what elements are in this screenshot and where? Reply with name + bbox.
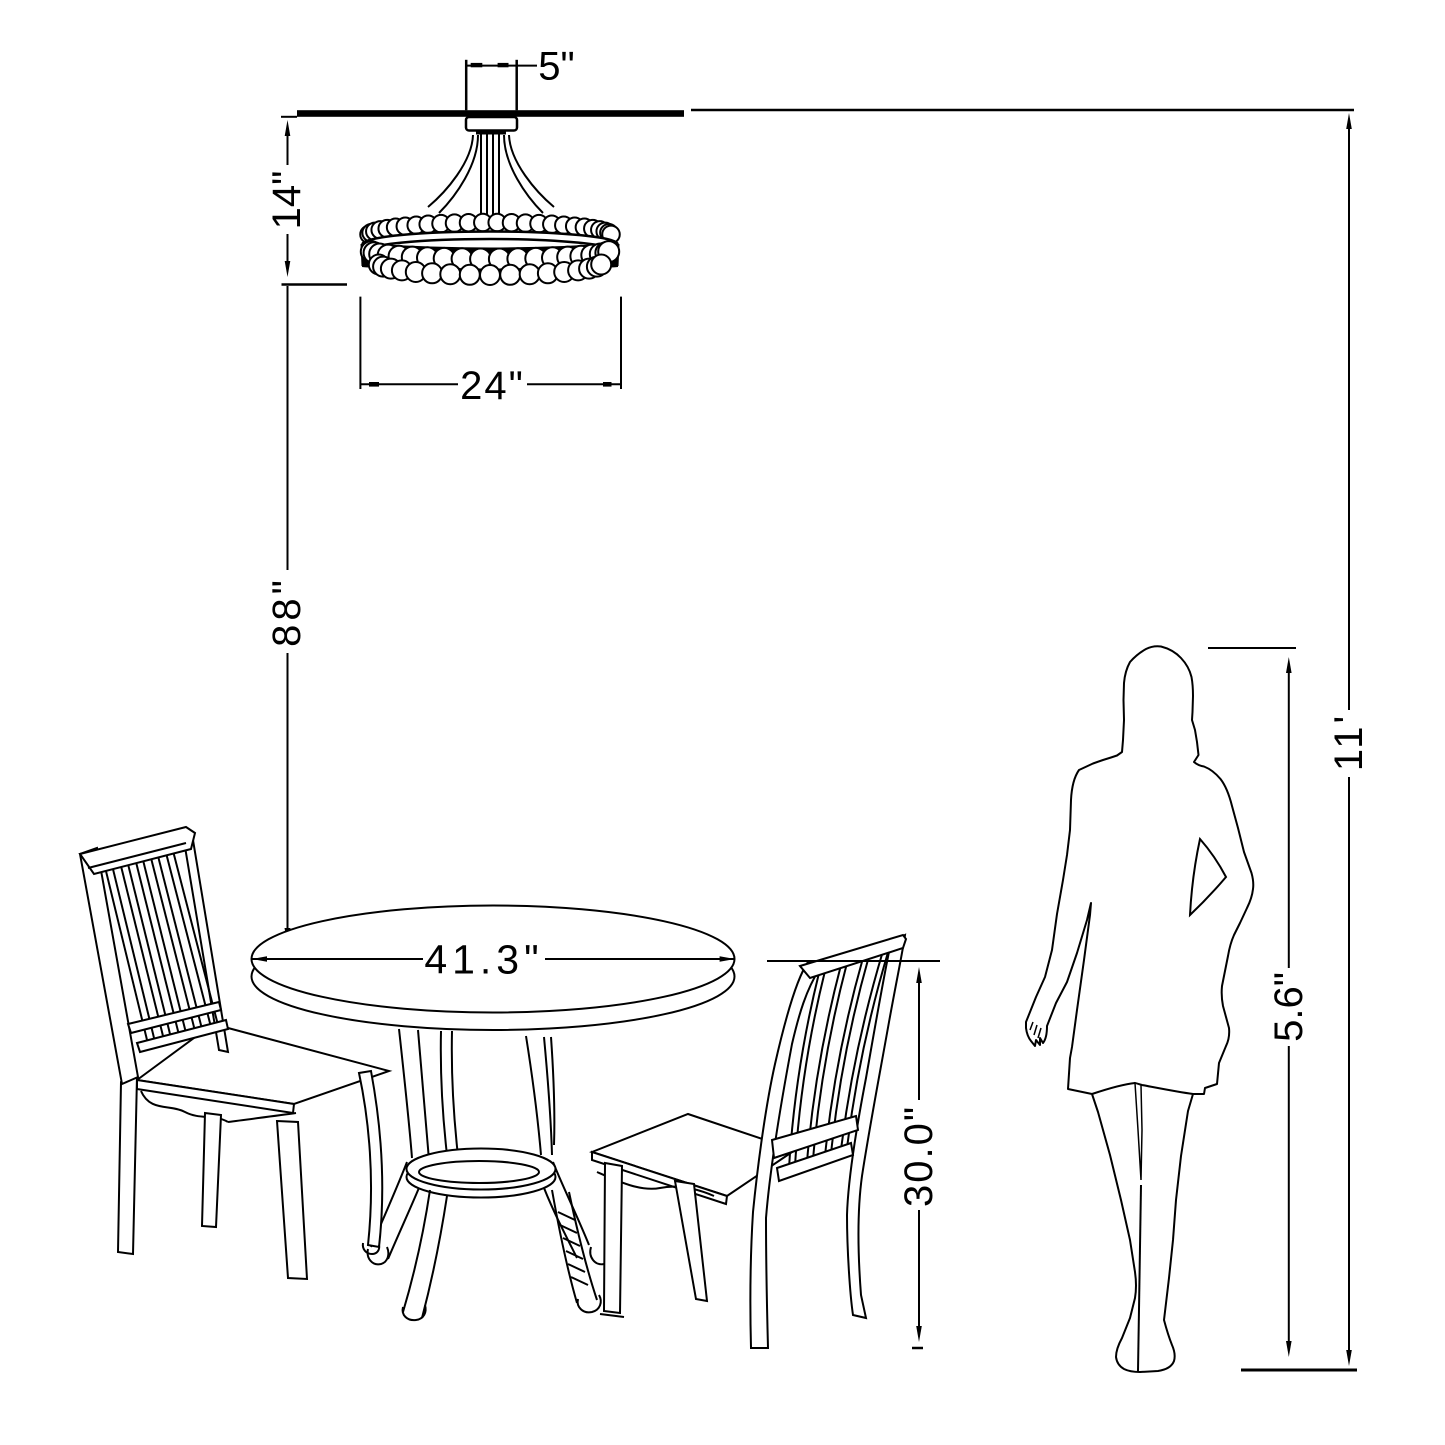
svg-text:88": 88" [265,576,309,647]
svg-text:5": 5" [538,45,574,89]
svg-text:30.0": 30.0" [897,1105,941,1207]
svg-text:5.6": 5.6" [1267,972,1311,1042]
svg-text:41.3": 41.3" [424,937,543,983]
svg-text:14": 14" [265,171,309,230]
svg-text:24": 24" [460,364,525,408]
svg-text:11': 11' [1327,713,1371,771]
